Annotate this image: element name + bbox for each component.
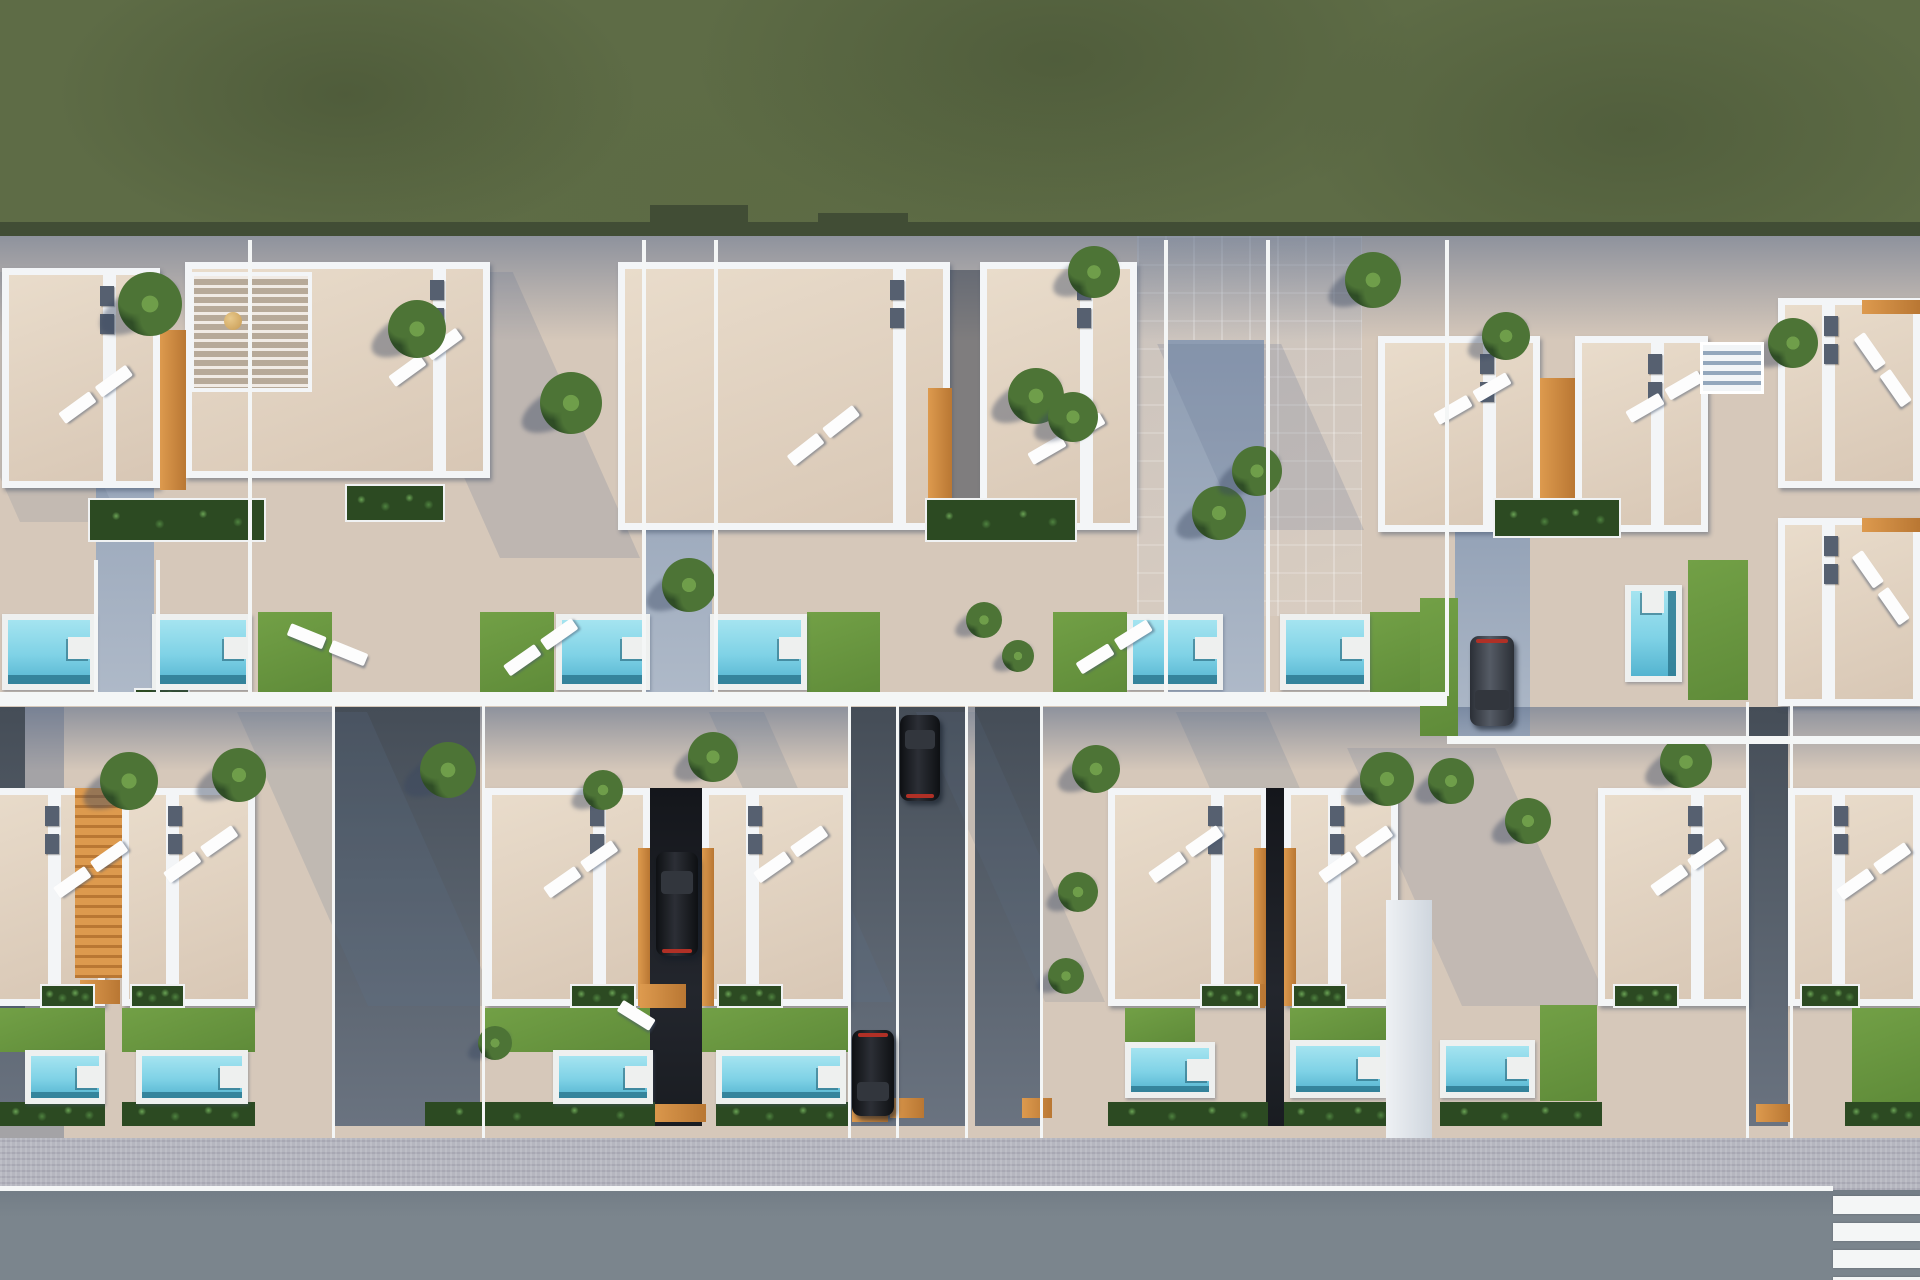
roof-vent <box>430 280 444 300</box>
private-lawn <box>807 612 880 692</box>
front-hedge <box>0 1102 105 1126</box>
pool-steps <box>1507 1057 1529 1079</box>
palm-tree <box>1345 252 1401 308</box>
planter-box <box>1613 984 1679 1008</box>
palm-tree <box>1428 758 1474 804</box>
pool-steps <box>1358 1057 1380 1079</box>
pool-steps <box>224 637 246 659</box>
planter-box <box>925 498 1077 542</box>
swimming-pool <box>1290 1040 1386 1098</box>
swimming-pool <box>553 1050 653 1104</box>
wood-deck-stair-strip <box>702 848 714 1006</box>
palm-tree <box>583 770 623 810</box>
roof-vent <box>1648 354 1662 374</box>
building-shadow-on-grass <box>818 213 908 236</box>
pool-steps <box>622 637 644 659</box>
palm-tree <box>1768 318 1818 368</box>
lot-boundary-line <box>1746 702 1749 1138</box>
palm-tree <box>388 300 446 358</box>
pool-steps <box>1195 637 1217 659</box>
palm-tree <box>966 602 1002 638</box>
planter-box <box>88 498 266 542</box>
roof-vent <box>168 834 182 854</box>
lot-boundary-line <box>965 702 968 1138</box>
roof-vent <box>45 834 59 854</box>
car-taillights <box>662 949 692 953</box>
front-hedge <box>1845 1102 1920 1126</box>
planter-box <box>1200 984 1260 1008</box>
front-hedge <box>122 1102 255 1126</box>
pool-steps <box>1187 1059 1209 1081</box>
sidewalk <box>0 1138 1920 1190</box>
roof-vent <box>1824 536 1838 556</box>
planter-box <box>130 984 185 1008</box>
roof-vent <box>1077 308 1091 328</box>
grass-shadow-edge <box>0 222 1920 236</box>
pool-steps <box>818 1066 840 1088</box>
private-lawn <box>1852 1008 1920 1102</box>
private-lawn <box>1688 560 1748 700</box>
parked-car <box>656 852 698 956</box>
planter-box <box>345 484 445 522</box>
car-windshield <box>1475 690 1509 710</box>
front-hedge <box>1108 1102 1268 1126</box>
front-hedge <box>425 1102 655 1126</box>
roof-vent <box>748 806 762 826</box>
asphalt-road <box>0 1190 1920 1280</box>
road-edge-line <box>0 1186 1833 1191</box>
lot-boundary-line <box>1790 702 1793 1138</box>
crosswalk-stripe <box>1833 1250 1920 1268</box>
car-taillights <box>1476 639 1508 643</box>
lot-boundary-line <box>1164 240 1168 696</box>
roof-vent <box>1208 806 1222 826</box>
wood-deck-stair-strip <box>1254 848 1266 1006</box>
shaded-passage <box>950 270 980 532</box>
palm-tree <box>1482 312 1530 360</box>
pool-steps <box>220 1066 242 1088</box>
lot-boundary-line <box>156 560 160 694</box>
planter-box <box>1800 984 1860 1008</box>
palm-tree <box>662 558 716 612</box>
lot-boundary-line <box>94 560 98 694</box>
building-shadow-on-grass <box>650 205 748 236</box>
lot-boundary-line <box>482 702 485 1138</box>
private-lawn <box>702 1008 850 1052</box>
swimming-pool <box>136 1050 248 1104</box>
palm-tree <box>1048 392 1098 442</box>
lot-boundary-line <box>1447 736 1920 744</box>
palm-tree <box>1048 958 1084 994</box>
swimming-pool <box>1280 614 1370 690</box>
crosswalk-stripe <box>1833 1223 1920 1241</box>
pool-steps <box>68 637 90 659</box>
palm-tree <box>1360 752 1414 806</box>
palm-tree <box>420 742 476 798</box>
swimming-pool <box>710 614 807 690</box>
wood-deck-stair-strip <box>1862 518 1920 532</box>
car-windshield <box>905 730 935 749</box>
private-lawn <box>1290 1008 1386 1042</box>
private-lawn <box>1420 598 1458 736</box>
parked-car <box>1470 636 1514 726</box>
front-hedge <box>1284 1102 1398 1126</box>
planter-box <box>1292 984 1347 1008</box>
pool-steps <box>779 637 801 659</box>
palm-tree <box>540 372 602 434</box>
car-taillights <box>858 1033 888 1037</box>
lot-boundary-line <box>1266 240 1270 696</box>
lot-boundary-line <box>642 240 646 696</box>
roof-vent <box>890 308 904 328</box>
roof-vent <box>1330 806 1344 826</box>
wood-deck-stair-strip <box>1022 1098 1052 1118</box>
villa-house <box>618 262 950 530</box>
lot-boundary-line <box>1040 702 1043 1138</box>
palm-tree <box>1058 872 1098 912</box>
wood-deck-stair-strip <box>160 330 186 490</box>
wood-deck-stair-strip <box>1862 300 1920 314</box>
swimming-pool <box>1440 1040 1535 1098</box>
lot-boundary-line <box>332 702 335 1138</box>
swimming-pool <box>1125 1042 1215 1098</box>
lot-boundary-line <box>896 702 899 1138</box>
palm-tree <box>1002 640 1034 672</box>
pool-steps <box>1342 637 1364 659</box>
shaded-side-passage <box>650 788 702 1126</box>
driveway <box>1748 707 1788 1126</box>
roof-vent <box>1330 834 1344 854</box>
parked-car <box>900 715 940 801</box>
lot-boundary-line <box>848 702 851 1138</box>
swimming-pool <box>2 614 96 690</box>
roof-vent <box>1834 834 1848 854</box>
private-lawn <box>1540 1005 1597 1101</box>
front-hedge <box>1440 1102 1602 1126</box>
roof-terrace <box>1115 795 1261 999</box>
palm-tree <box>1072 745 1120 793</box>
palm-tree <box>1068 246 1120 298</box>
external-stair-structure <box>1700 342 1764 394</box>
palm-tree <box>688 732 738 782</box>
planter-box <box>40 984 95 1008</box>
palm-tree <box>212 748 266 802</box>
villa-house <box>1108 788 1268 1006</box>
lot-boundary-line <box>248 240 252 696</box>
car-taillights <box>906 794 934 798</box>
palm-tree <box>1232 446 1282 496</box>
sun-lounger <box>328 640 368 666</box>
wood-deck-stair-strip <box>650 1104 706 1122</box>
private-lawn <box>122 1008 255 1052</box>
car-windshield <box>661 871 693 894</box>
roof-vent <box>748 834 762 854</box>
villa-house <box>122 788 255 1006</box>
planter-box <box>1493 498 1621 538</box>
parked-car <box>852 1030 894 1116</box>
crosswalk-stripe <box>1833 1196 1920 1214</box>
boundary-wall-column <box>1386 900 1432 1138</box>
aerial-render-scene: Top-down 3D visualization: two rows of s… <box>0 0 1920 1280</box>
roof-vent <box>1824 316 1838 336</box>
swimming-pool <box>25 1050 105 1104</box>
wood-deck-stair-strip <box>1284 848 1296 1006</box>
roof-vent <box>168 806 182 826</box>
private-lawn <box>1125 1008 1195 1042</box>
lot-boundary-line <box>0 700 1447 706</box>
wood-deck-stair-strip <box>638 848 650 1006</box>
private-lawn <box>0 1008 105 1052</box>
palm-tree <box>118 272 182 336</box>
roof-vent <box>1688 806 1702 826</box>
roof-table <box>224 312 242 330</box>
lot-boundary-line <box>714 240 718 696</box>
swimming-pool <box>716 1050 846 1104</box>
roof-vent <box>1834 806 1848 826</box>
roof-vent <box>45 806 59 826</box>
pool-steps <box>1642 591 1664 613</box>
swimming-pool <box>152 614 252 690</box>
car-windshield <box>857 1082 889 1101</box>
grass-field <box>0 0 1920 236</box>
pool-steps <box>77 1066 99 1088</box>
wood-deck-stair-strip <box>1756 1104 1790 1122</box>
shaded-side-passage <box>1266 788 1284 1126</box>
wood-deck-stair-strip <box>640 984 686 1008</box>
front-hedge <box>716 1102 850 1126</box>
palm-tree <box>1505 798 1551 844</box>
pool-steps <box>625 1066 647 1088</box>
roof-vent <box>1824 344 1838 364</box>
swimming-pool <box>1625 585 1682 682</box>
lot-boundary-line <box>1445 240 1449 696</box>
lot-boundary-line <box>0 692 1447 700</box>
roof-vent <box>890 280 904 300</box>
planter-box <box>717 984 783 1008</box>
palm-tree <box>100 752 158 810</box>
